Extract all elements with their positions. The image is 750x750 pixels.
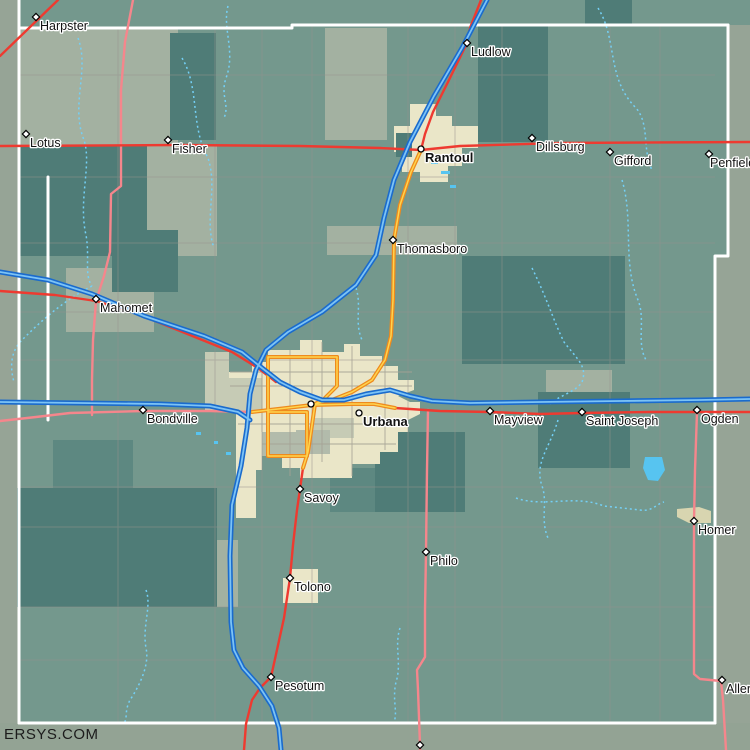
region <box>53 440 133 488</box>
region <box>0 0 18 750</box>
region <box>0 723 750 750</box>
town-label[interactable]: Pesotum <box>275 679 324 693</box>
region <box>715 256 750 723</box>
pond <box>226 452 231 455</box>
town-label[interactable]: Allerton <box>726 682 750 696</box>
region <box>205 352 229 412</box>
pond <box>441 171 450 174</box>
town-label[interactable]: Dillsburg <box>536 140 585 154</box>
town-label[interactable]: Lotus <box>30 136 61 150</box>
town-label[interactable]: Gifford <box>614 154 651 168</box>
town-label[interactable]: Penfield <box>710 156 750 170</box>
town-label[interactable]: Thomasboro <box>397 242 467 256</box>
map-canvas[interactable]: HarpsterLotusFisherLudlowRantoulDillsbur… <box>0 0 750 750</box>
town-label[interactable]: Ludlow <box>471 45 512 59</box>
city-marker-icon[interactable] <box>356 410 362 416</box>
town-unlabeled[interactable] <box>308 401 314 407</box>
town-label[interactable]: Savoy <box>304 491 339 505</box>
town-label[interactable]: Harpster <box>40 19 88 33</box>
region <box>216 540 238 607</box>
region <box>112 230 178 292</box>
town-label[interactable]: Tolono <box>294 580 331 594</box>
region <box>17 488 217 607</box>
pond <box>450 185 456 188</box>
region <box>325 28 387 140</box>
region <box>478 25 548 142</box>
ersys-watermark: ERSYS.COM <box>4 726 99 743</box>
town-label[interactable]: Urbana <box>363 414 409 429</box>
town-label[interactable]: Homer <box>698 523 736 537</box>
town-label[interactable]: Mayview <box>494 413 544 427</box>
city-marker-icon[interactable] <box>418 146 424 152</box>
town-label[interactable]: Bondville <box>147 412 198 426</box>
region <box>462 256 625 364</box>
town-label[interactable]: Fisher <box>172 142 207 156</box>
region <box>18 28 178 146</box>
map-stage: HarpsterLotusFisherLudlowRantoulDillsbur… <box>0 0 750 750</box>
region <box>170 33 216 140</box>
pond <box>196 432 201 435</box>
town-label[interactable]: Rantoul <box>425 150 473 165</box>
town-label[interactable]: Mahomet <box>100 301 153 315</box>
region <box>228 378 262 412</box>
town-label[interactable]: Ogden <box>701 412 739 426</box>
town-label[interactable]: Philo <box>430 554 458 568</box>
region <box>585 0 632 25</box>
city-marker-icon[interactable] <box>308 401 314 407</box>
town-label[interactable]: Saint Joseph <box>586 414 658 428</box>
region <box>296 430 330 454</box>
pond <box>214 441 218 444</box>
region <box>728 25 750 256</box>
